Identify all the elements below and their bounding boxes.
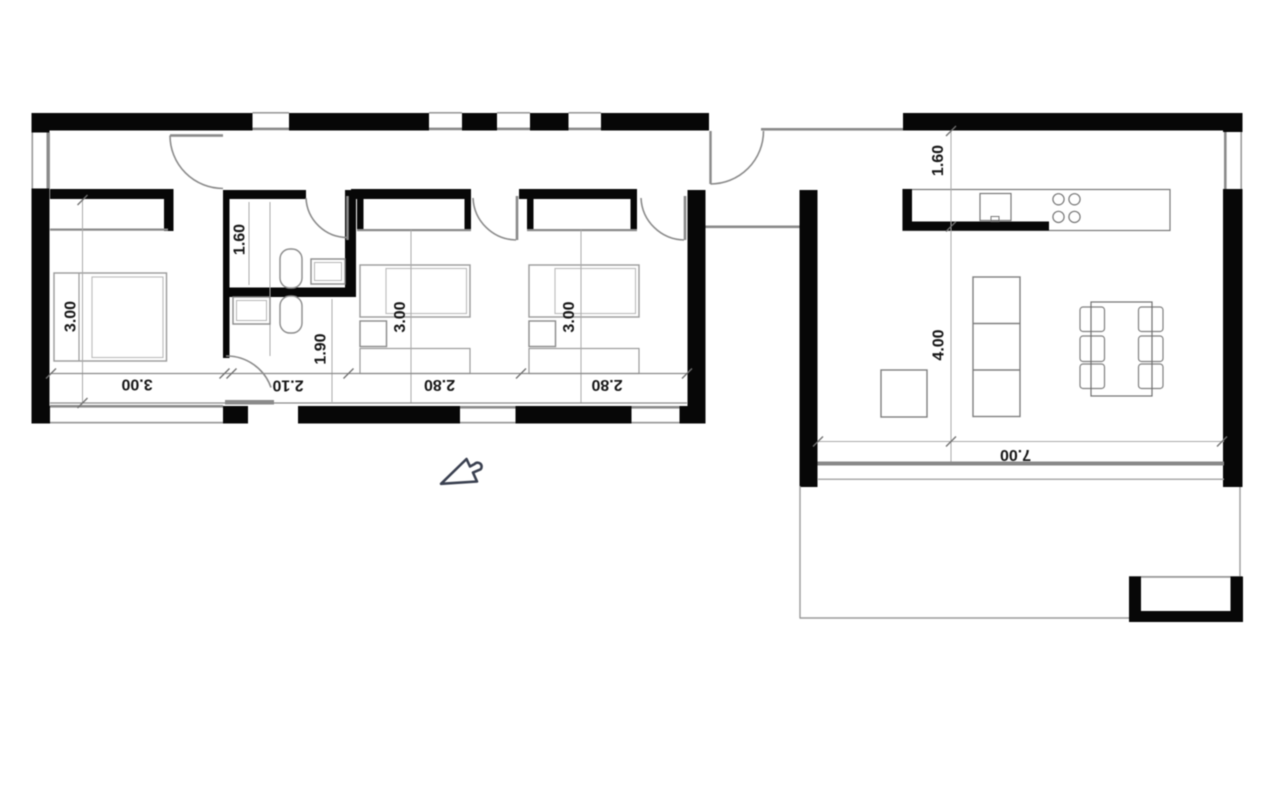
svg-text:1.60: 1.60 <box>930 145 947 176</box>
svg-text:2.10: 2.10 <box>272 377 303 394</box>
svg-text:1.90: 1.90 <box>313 333 330 364</box>
svg-text:4.00: 4.00 <box>931 329 948 360</box>
svg-text:3.00: 3.00 <box>63 301 80 332</box>
svg-text:3.00: 3.00 <box>121 376 152 393</box>
svg-text:2.80: 2.80 <box>591 376 622 393</box>
svg-text:2.80: 2.80 <box>424 376 455 393</box>
svg-text:7.00: 7.00 <box>1000 446 1031 463</box>
svg-text:3.00: 3.00 <box>561 301 578 332</box>
svg-text:3.00: 3.00 <box>392 301 409 332</box>
svg-text:1.60: 1.60 <box>232 224 249 255</box>
